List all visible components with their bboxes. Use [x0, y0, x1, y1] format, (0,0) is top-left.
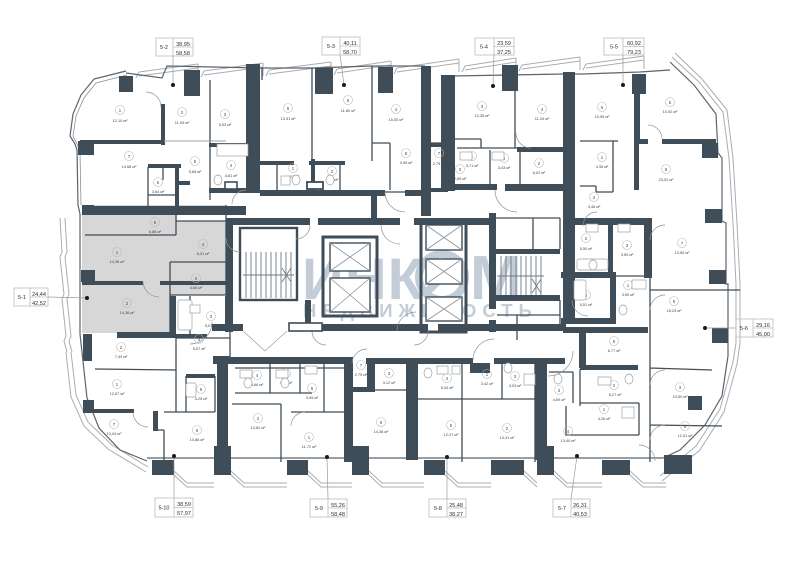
svg-text:2,75 м²: 2,75 м²: [433, 161, 446, 166]
svg-text:13,51 м²: 13,51 м²: [281, 116, 296, 121]
svg-text:5,51 м²: 5,51 м²: [580, 302, 593, 307]
svg-text:5-7: 5-7: [558, 506, 566, 512]
svg-text:12,35 м²: 12,35 м²: [475, 113, 490, 118]
svg-text:37,25: 37,25: [497, 50, 511, 56]
svg-text:14,68 м²: 14,68 м²: [122, 164, 137, 169]
svg-text:3,64 м²: 3,64 м²: [152, 189, 165, 194]
svg-text:12,67 м²: 12,67 м²: [110, 391, 125, 396]
svg-text:13,41 м²: 13,41 м²: [500, 435, 515, 440]
svg-text:11,24 м²: 11,24 м²: [535, 116, 550, 121]
svg-text:38,95: 38,95: [176, 42, 190, 48]
svg-text:58,70: 58,70: [343, 50, 357, 56]
svg-text:5,66 м²: 5,66 м²: [189, 169, 202, 174]
svg-text:5-1: 5-1: [18, 295, 26, 301]
svg-text:13,50 м²: 13,50 м²: [673, 394, 688, 399]
svg-text:3,50 м²: 3,50 м²: [621, 252, 634, 257]
svg-text:5-2: 5-2: [160, 45, 168, 51]
svg-text:3,95 м²: 3,95 м²: [400, 160, 413, 165]
svg-text:14,36 м²: 14,36 м²: [110, 259, 125, 264]
svg-text:5,52 м²: 5,52 м²: [219, 122, 232, 127]
svg-text:5-6: 5-6: [740, 326, 748, 332]
svg-text:12,51 м²: 12,51 м²: [678, 433, 693, 438]
svg-text:11,72 м²: 11,72 м²: [302, 444, 317, 449]
svg-text:5-8: 5-8: [434, 506, 442, 512]
svg-text:13,40 м²: 13,40 м²: [561, 438, 576, 443]
svg-text:5,57 м²: 5,57 м²: [193, 346, 206, 351]
svg-text:12,10 м²: 12,10 м²: [113, 118, 128, 123]
svg-text:6,88 м²: 6,88 м²: [149, 229, 162, 234]
svg-text:11,09 м²: 11,09 м²: [175, 120, 190, 125]
svg-text:3,95 м²: 3,95 м²: [306, 395, 319, 400]
svg-text:42,52: 42,52: [32, 301, 46, 307]
svg-text:12,07 м²: 12,07 м²: [444, 432, 459, 437]
svg-text:3,43 м²: 3,43 м²: [498, 165, 511, 170]
svg-text:10,95 м²: 10,95 м²: [595, 114, 610, 119]
svg-text:45,00: 45,00: [756, 332, 770, 338]
svg-text:4,81 м²: 4,81 м²: [225, 173, 238, 178]
svg-text:5-9: 5-9: [315, 506, 323, 512]
svg-text:3,71 м²: 3,71 м²: [466, 163, 479, 168]
svg-text:10,02 м²: 10,02 м²: [663, 109, 678, 114]
svg-text:6,77 м²: 6,77 м²: [608, 348, 621, 353]
svg-text:3,12 м²: 3,12 м²: [383, 380, 396, 385]
svg-text:23,59: 23,59: [497, 41, 511, 47]
svg-text:14,36 м²: 14,36 м²: [120, 310, 135, 315]
svg-text:7,49 м²: 7,49 м²: [115, 354, 128, 359]
svg-text:55,26: 55,26: [331, 503, 345, 509]
svg-text:10,88 м²: 10,88 м²: [190, 437, 205, 442]
svg-text:3,50 м²: 3,50 м²: [622, 292, 635, 297]
svg-text:38,59: 38,59: [177, 502, 191, 508]
svg-text:4,68 м²: 4,68 м²: [190, 285, 203, 290]
svg-text:5-4: 5-4: [480, 45, 488, 51]
svg-text:60,92: 60,92: [627, 41, 641, 47]
svg-text:40,11: 40,11: [343, 41, 356, 47]
svg-text:2,89 м²: 2,89 м²: [454, 176, 467, 181]
svg-text:25,48: 25,48: [449, 503, 463, 509]
svg-text:6,31 м²: 6,31 м²: [197, 251, 210, 256]
svg-text:3,42 м²: 3,42 м²: [481, 381, 494, 386]
svg-text:38,27: 38,27: [449, 512, 463, 518]
svg-text:24,44: 24,44: [32, 292, 46, 298]
svg-text:2,79 м²: 2,79 м²: [355, 372, 368, 377]
svg-text:5-10: 5-10: [158, 506, 169, 512]
svg-text:23,02 м²: 23,02 м²: [659, 177, 674, 182]
svg-text:3,25 м²: 3,25 м²: [195, 396, 208, 401]
svg-text:13,04 м²: 13,04 м²: [107, 431, 122, 436]
svg-text:5,27 м²: 5,27 м²: [609, 392, 622, 397]
svg-text:4,69 м²: 4,69 м²: [553, 397, 566, 402]
svg-text:13,50 м²: 13,50 м²: [675, 250, 690, 255]
svg-text:5,34 м²: 5,34 м²: [441, 385, 454, 390]
svg-text:5,50 м²: 5,50 м²: [580, 246, 593, 251]
svg-text:5-3: 5-3: [327, 44, 335, 50]
svg-text:4,48 м²: 4,48 м²: [588, 204, 601, 209]
svg-text:58,58: 58,58: [176, 51, 190, 57]
svg-text:58,48: 58,48: [331, 512, 345, 518]
svg-text:14,36 м²: 14,36 м²: [374, 429, 389, 434]
svg-text:5,07 м²: 5,07 м²: [205, 323, 218, 328]
svg-text:40,53: 40,53: [573, 512, 587, 518]
svg-text:4,03 м²: 4,03 м²: [509, 383, 522, 388]
svg-text:79,23: 79,23: [627, 50, 641, 56]
svg-text:5-5: 5-5: [610, 45, 618, 51]
svg-text:11,60 м²: 11,60 м²: [341, 108, 356, 113]
svg-text:15,23 м²: 15,23 м²: [667, 308, 682, 313]
svg-text:4,35 м²: 4,35 м²: [596, 164, 609, 169]
svg-text:4,26 м²: 4,26 м²: [598, 416, 611, 421]
svg-text:3,66 м²: 3,66 м²: [251, 382, 264, 387]
svg-text:6,02 м²: 6,02 м²: [533, 170, 546, 175]
svg-text:29,16: 29,16: [756, 323, 770, 329]
svg-text:57,97: 57,97: [177, 511, 191, 517]
svg-text:13,62 м²: 13,62 м²: [251, 425, 266, 430]
svg-text:15,00 м²: 15,00 м²: [389, 117, 404, 122]
svg-text:26,31: 26,31: [573, 503, 587, 509]
